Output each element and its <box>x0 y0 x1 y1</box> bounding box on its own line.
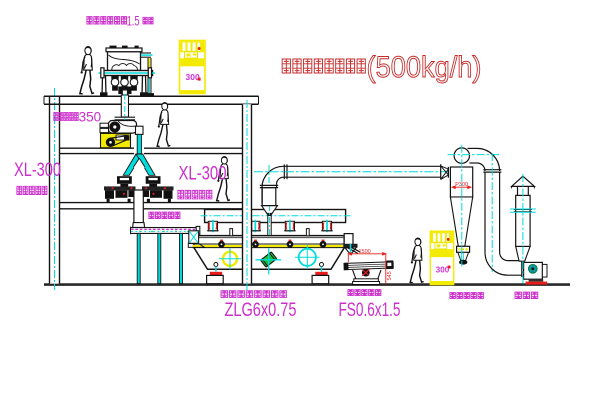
svg-text:1500: 1500 <box>359 249 371 255</box>
svg-text:ZLG6x0.75: ZLG6x0.75 <box>225 300 297 321</box>
svg-text:545: 545 <box>387 271 393 280</box>
svg-text:XL-300: XL-300 <box>14 160 61 181</box>
svg-text:FS0.6x1.5: FS0.6x1.5 <box>339 300 401 321</box>
svg-text:1.5: 1.5 <box>127 13 140 29</box>
svg-text:XL-300: XL-300 <box>179 164 227 185</box>
svg-text:(500kg/h): (500kg/h) <box>367 51 482 84</box>
svg-text:300: 300 <box>436 266 450 275</box>
svg-text:350: 350 <box>79 110 102 125</box>
